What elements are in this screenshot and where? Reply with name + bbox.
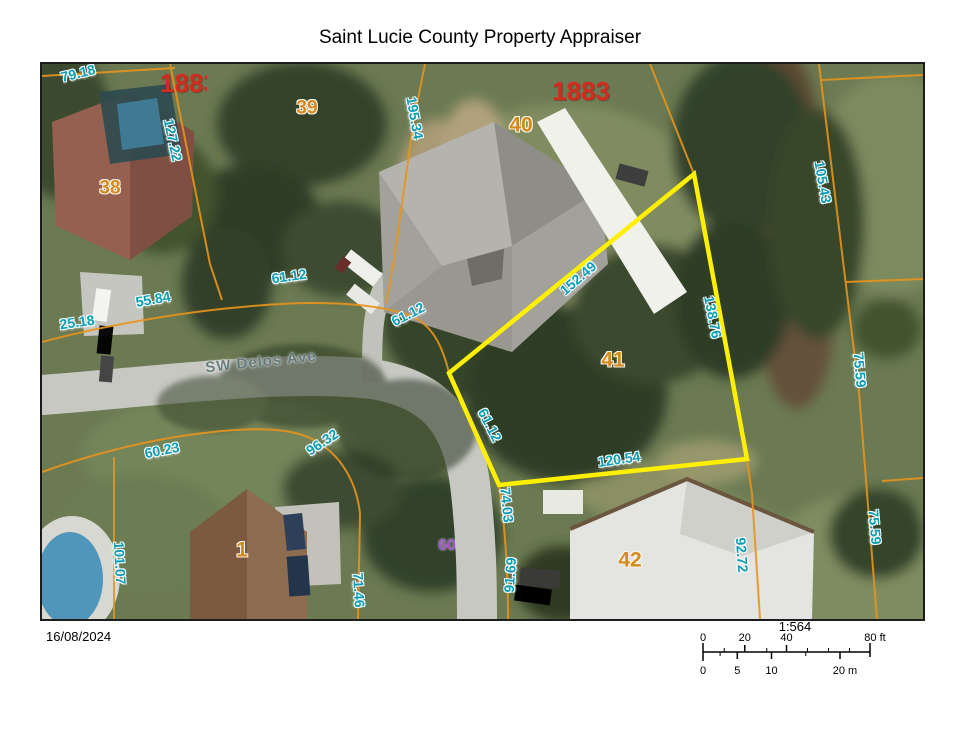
scale-ft-20: 20 [739, 633, 751, 644]
lot-number-60: 60 [438, 538, 456, 554]
parcel-number-41: 41 [601, 350, 624, 371]
dim-label: 75.59 [866, 509, 883, 545]
scale-ratio: 1:564 [690, 619, 900, 634]
page-title: Saint Lucie County Property Appraiser [0, 27, 960, 49]
parcel-number-42: 42 [618, 550, 641, 571]
map-canvas[interactable]: 79.18 127.22 195.34 61.12 55.84 25.18 61… [40, 62, 925, 621]
scale-ft-0: 0 [700, 633, 706, 644]
scale-m-0: 0 [700, 665, 706, 677]
parcel-number-38: 38 [99, 179, 120, 198]
dim-label: 71.46 [351, 572, 367, 608]
scale-ft-80: 80 ft [864, 633, 885, 644]
car-lot1-b [287, 555, 311, 596]
plat-number-right: 1883 [552, 78, 610, 104]
parcel-number-1: 1 [236, 540, 248, 561]
plat-number-left: 1883 [160, 70, 207, 96]
scale-ruler: 0 20 40 80 ft 0 5 10 20 m [690, 633, 900, 679]
dim-label: 74.03 [498, 487, 516, 523]
dim-label: 101.07 [112, 541, 128, 585]
dim-label: 75.59 [851, 352, 868, 388]
map-date: 16/08/2024 [46, 629, 111, 644]
dim-label: 92.72 [734, 537, 750, 573]
page: { "header": { "title": "Saint Lucie Coun… [0, 0, 960, 741]
plat-number-left-clipped: 1883 [160, 70, 207, 104]
dim-label: 91.69 [502, 557, 518, 593]
scale-m-10: 10 [765, 665, 777, 677]
pool-lot38 [117, 98, 164, 150]
shed-lot42 [543, 490, 583, 514]
scale-m-5: 5 [734, 665, 740, 677]
car-lot1-a [283, 513, 306, 551]
parcel-number-40: 40 [509, 115, 532, 136]
parcel-number-39: 39 [296, 99, 317, 118]
scale-m-20: 20 m [833, 665, 857, 677]
scale-ft-40: 40 [780, 633, 792, 644]
scale-bar: 1:564 0 20 40 80 ft 0 5 10 20 m [690, 617, 900, 679]
